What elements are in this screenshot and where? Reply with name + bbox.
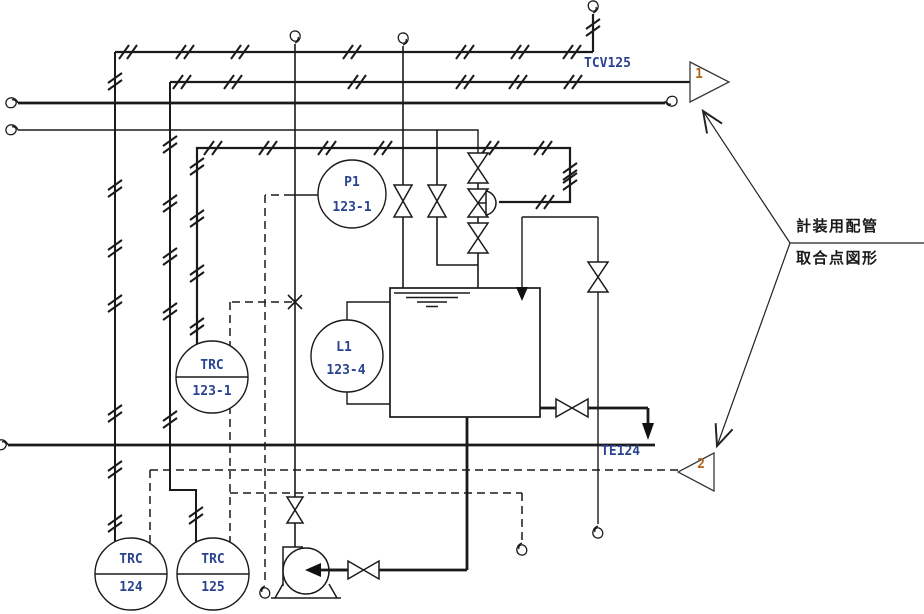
valve: [348, 561, 379, 579]
valve: [468, 153, 488, 183]
connector-2-flag: [678, 453, 714, 491]
note-pointer: [703, 111, 924, 446]
tank-inlet-arrow: [516, 287, 528, 301]
valve: [588, 262, 608, 292]
tank: [390, 288, 540, 417]
line-label-te124: TE124: [601, 445, 640, 458]
instrument-p1-loop: 123-1: [332, 201, 371, 214]
valve: [428, 185, 446, 217]
valve: [556, 399, 588, 417]
instrument-bubbles: [95, 160, 386, 610]
pump: [271, 547, 348, 598]
instrument-p1-tag: P1: [344, 176, 360, 189]
line-label-tcv125: TCV125: [584, 57, 631, 70]
note-line-2: 取合点図形: [796, 251, 879, 266]
connection-flags: [678, 62, 729, 491]
process-lines: [8, 44, 665, 570]
valve: [394, 185, 412, 217]
note-line-1: 計装用配管: [796, 219, 879, 234]
instrument-l1: [311, 320, 383, 392]
instrument-trc123-1-loop: 123-1: [192, 385, 231, 398]
instrument-trc124-loop: 124: [119, 581, 142, 594]
pid-diagram: TCV125 TE124 1 2 P1 123-1 L1 123-4 TRC 1…: [0, 0, 924, 614]
liquid-level-symbol: [394, 293, 470, 307]
valve: [287, 497, 303, 523]
valve: [468, 223, 488, 253]
line-break-symbols: [0, 1, 677, 598]
instrument-l1-tag: L1: [336, 341, 352, 354]
instrument-trc123-1-tag: TRC: [200, 359, 223, 372]
instrument-trc125-loop: 125: [201, 581, 224, 594]
connector-1-number: 1: [695, 68, 703, 81]
connector-2-number: 2: [697, 458, 705, 471]
instrument-trc124-tag: TRC: [119, 553, 142, 566]
instrument-trc125-tag: TRC: [201, 553, 224, 566]
pid-diagram-canvas: [0, 0, 924, 614]
line-hash-marks: [108, 19, 600, 532]
instrument-l1-loop: 123-4: [326, 364, 365, 377]
drain-arrow: [642, 423, 654, 440]
instrument-p1: [318, 160, 386, 228]
